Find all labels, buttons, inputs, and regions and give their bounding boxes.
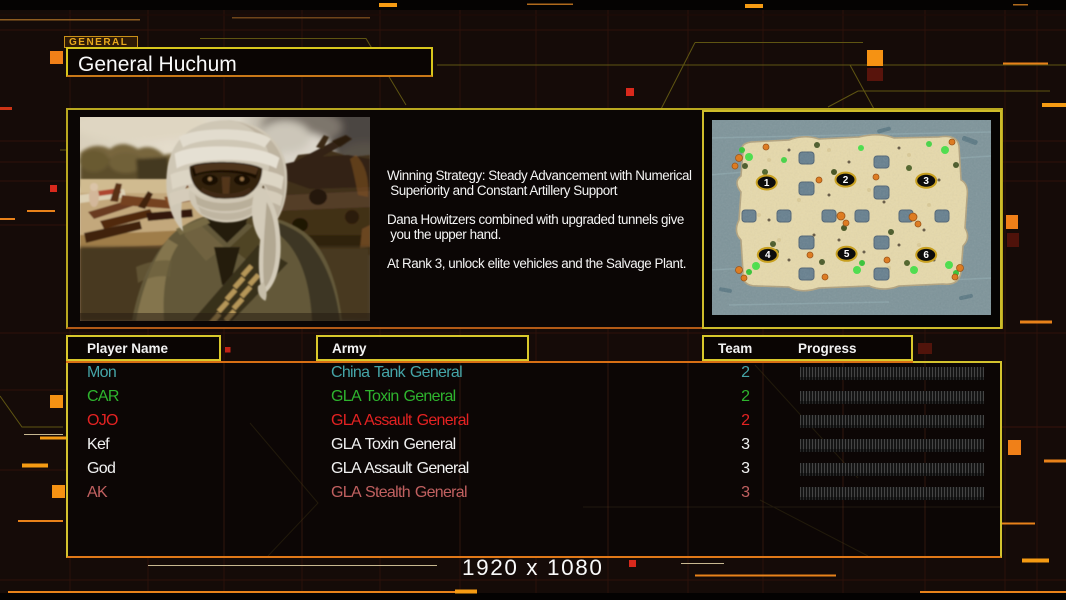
svg-text:2: 2 <box>843 175 849 186</box>
svg-text:6: 6 <box>923 250 929 261</box>
svg-text:4: 4 <box>765 250 771 261</box>
svg-text:1: 1 <box>764 178 770 189</box>
svg-text:5: 5 <box>844 249 850 260</box>
svg-text:3: 3 <box>923 176 929 187</box>
